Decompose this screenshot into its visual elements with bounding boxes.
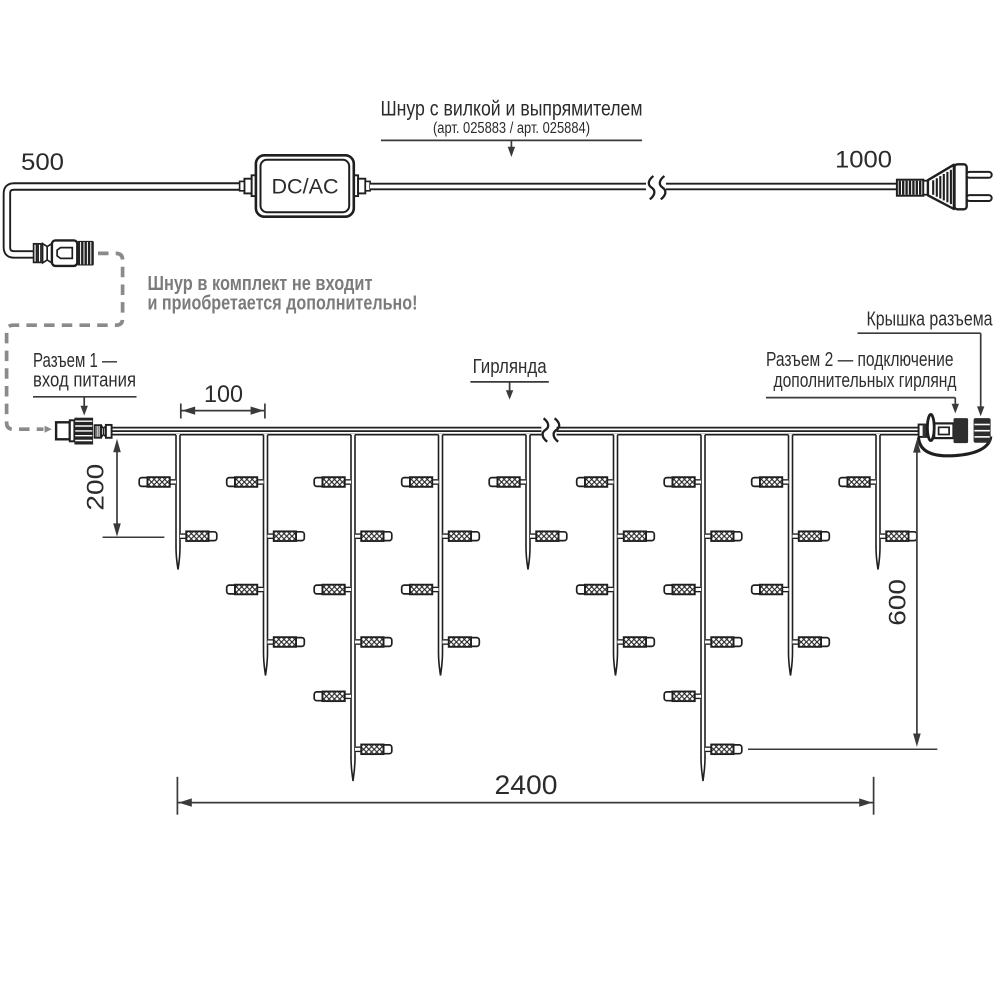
svg-text:2400: 2400 <box>495 770 558 800</box>
svg-text:Разъем 2 — подключение: Разъем 2 — подключение <box>766 349 954 371</box>
svg-text:1000: 1000 <box>835 147 892 174</box>
svg-text:Гирлянда: Гирлянда <box>473 356 548 378</box>
svg-text:200: 200 <box>83 464 110 511</box>
svg-text:500: 500 <box>21 149 64 176</box>
svg-text:DC/AC: DC/AC <box>272 174 339 198</box>
svg-text:600: 600 <box>885 579 912 626</box>
svg-text:Шнур с вилкой и выпрямителем: Шнур с вилкой и выпрямителем <box>381 98 643 121</box>
svg-text:100: 100 <box>204 381 243 408</box>
svg-text:(арт. 025883 / арт. 025884): (арт. 025883 / арт. 025884) <box>433 120 590 137</box>
svg-text:вход питания: вход питания <box>33 370 136 392</box>
svg-text:дополнительных гирлянд: дополнительных гирлянд <box>774 370 957 392</box>
svg-text:Крышка разъема: Крышка разъема <box>867 308 994 330</box>
svg-text:и приобретается дополнительно!: и приобретается дополнительно! <box>148 292 418 315</box>
